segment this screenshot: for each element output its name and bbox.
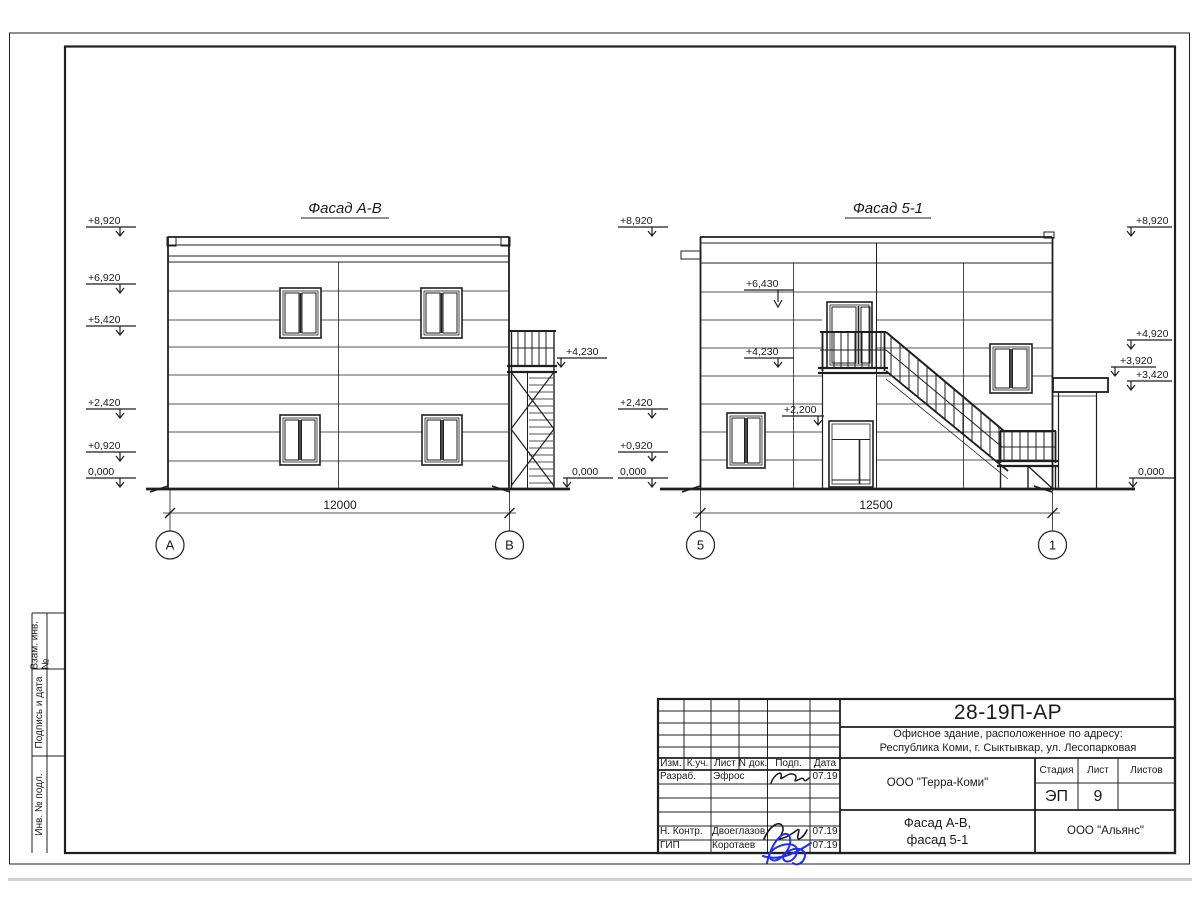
svg-text:0,000: 0,000: [572, 466, 598, 478]
row-developer-date: 07.19: [810, 769, 840, 784]
facade-ab-title: Фасад А-В: [308, 200, 382, 217]
svg-text:+5,420: +5,420: [88, 314, 121, 326]
svg-text:+0,920: +0,920: [88, 440, 121, 452]
dimension-51: 12500 5 1: [687, 490, 1067, 559]
stair-landing: [997, 431, 1058, 489]
elevation-mark: +6,920: [86, 272, 136, 293]
elevation-mark: 0,000: [618, 466, 668, 487]
svg-text:0,000: 0,000: [88, 466, 114, 478]
svg-text:+2,420: +2,420: [620, 397, 653, 409]
row-ncontrol-name: Двоеглазов: [712, 825, 768, 839]
entrance-door: [829, 421, 873, 487]
titleblock-company: ООО "Терра-Коми": [841, 759, 1034, 809]
svg-text:+3,420: +3,420: [1136, 369, 1169, 381]
col-header-podp: Подп.: [767, 758, 810, 770]
axis-label: 1: [1049, 538, 1056, 553]
row-gip-name: Коротаев: [712, 839, 768, 853]
elevation-mark: +6,430: [744, 278, 794, 307]
dimension-text: 12000: [323, 498, 357, 512]
elevation-mark: 0,000: [563, 466, 613, 487]
svg-text:+4,230: +4,230: [746, 346, 779, 358]
sheet-title: Фасад А-В, фасад 5-1: [841, 810, 1034, 853]
facade-51-title: Фасад 5-1: [853, 200, 923, 217]
signature-icon: [763, 773, 811, 864]
drawing-sheet: Фасад А-В +8,920 +6,920 +5,420 +2,420 +0…: [0, 0, 1200, 900]
elevation-mark: +2,200: [782, 404, 824, 425]
svg-text:+8,920: +8,920: [1136, 215, 1169, 227]
elevation-mark: +3,420: [1127, 369, 1172, 390]
svg-text:+3,920: +3,920: [1120, 355, 1153, 367]
sheet-title-line1: Фасад А-В,: [904, 815, 971, 831]
stage-value: ЭП: [1035, 783, 1078, 810]
svg-text:+4,920: +4,920: [1136, 328, 1169, 340]
blue-signature-icon: [763, 834, 811, 864]
entrance-canopy: [1053, 378, 1108, 488]
row-ncontrol-role: Н. Контр.: [660, 825, 712, 839]
stair-tower: [507, 331, 557, 488]
window: [727, 413, 765, 468]
svg-text:+2,420: +2,420: [88, 397, 121, 409]
titleblock-doc-code: 28-19П-АР: [841, 699, 1175, 727]
margin-label-podpis: Подпись и дата: [32, 669, 47, 756]
elevation-mark: +4,920: [1127, 328, 1172, 349]
svg-text:+6,430: +6,430: [746, 278, 779, 290]
sheets-value: [1118, 783, 1175, 810]
dimension-ab: 12000 А В: [156, 490, 524, 559]
axis-label: А: [166, 538, 175, 553]
titleblock-contractor: ООО "Альянс": [1036, 810, 1175, 853]
elevation-mark: +2,420: [86, 397, 136, 418]
facade-ab: Фасад А-В +8,920 +6,920 +5,420 +2,420 +0…: [86, 200, 613, 559]
row-ncontrol-date: 07.19: [810, 825, 840, 839]
elevation-mark: +8,920: [618, 215, 668, 236]
row-gip-date: 07.19: [810, 839, 840, 853]
svg-text:+2,200: +2,200: [784, 404, 817, 416]
window: [280, 415, 320, 465]
svg-text:+8,920: +8,920: [620, 215, 653, 227]
row-developer-name: Эфрос: [713, 769, 767, 784]
dimension-text: 12500: [859, 498, 893, 512]
row-gip-role: ГИП: [660, 839, 712, 853]
margin-label-vzam: Взам. инв. №: [32, 613, 47, 669]
svg-text:+6,920: +6,920: [88, 272, 121, 284]
sheet-title-line2: фасад 5-1: [907, 832, 969, 848]
elevation-mark: +8,920: [1127, 215, 1172, 236]
margin-label-inv: Инв. № подл.: [32, 756, 47, 853]
facade-51: Фасад 5-1 +8,920 +2,420 +0,920 0,000 +6,…: [618, 200, 1174, 559]
svg-text:+8,920: +8,920: [88, 215, 121, 227]
svg-text:0,000: 0,000: [620, 466, 646, 478]
window: [421, 288, 462, 338]
axis-label: 5: [697, 538, 704, 553]
elevation-mark: +0,920: [86, 440, 136, 461]
elevation-mark: +2,420: [618, 397, 668, 418]
row-developer-role: Разраб.: [660, 769, 712, 784]
elevation-mark: 0,000: [86, 466, 136, 487]
window: [422, 415, 462, 465]
window: [280, 288, 321, 338]
elevation-mark: +5,420: [86, 314, 136, 335]
sheet-value: 9: [1078, 783, 1118, 810]
stage-label: Стадия: [1035, 758, 1078, 783]
axis-label: В: [505, 538, 514, 553]
window: [990, 344, 1032, 393]
sheets-label: Листов: [1118, 758, 1175, 783]
svg-text:0,000: 0,000: [1138, 466, 1164, 478]
elevation-mark: +0,920: [618, 440, 668, 461]
elevation-mark: +4,230: [744, 346, 794, 367]
sheet-label: Лист: [1078, 758, 1118, 783]
titleblock-address-line2: Республика Коми, г. Сыктывкар, ул. Лесоп…: [841, 741, 1175, 757]
page-edge-shadow: [8, 878, 1192, 881]
elevation-mark: +4,230: [557, 346, 607, 367]
svg-text:+4,230: +4,230: [566, 346, 599, 358]
svg-text:+0,920: +0,920: [620, 440, 653, 452]
elevation-mark: 0,000: [1129, 466, 1174, 487]
elevation-mark: +8,920: [86, 215, 136, 236]
